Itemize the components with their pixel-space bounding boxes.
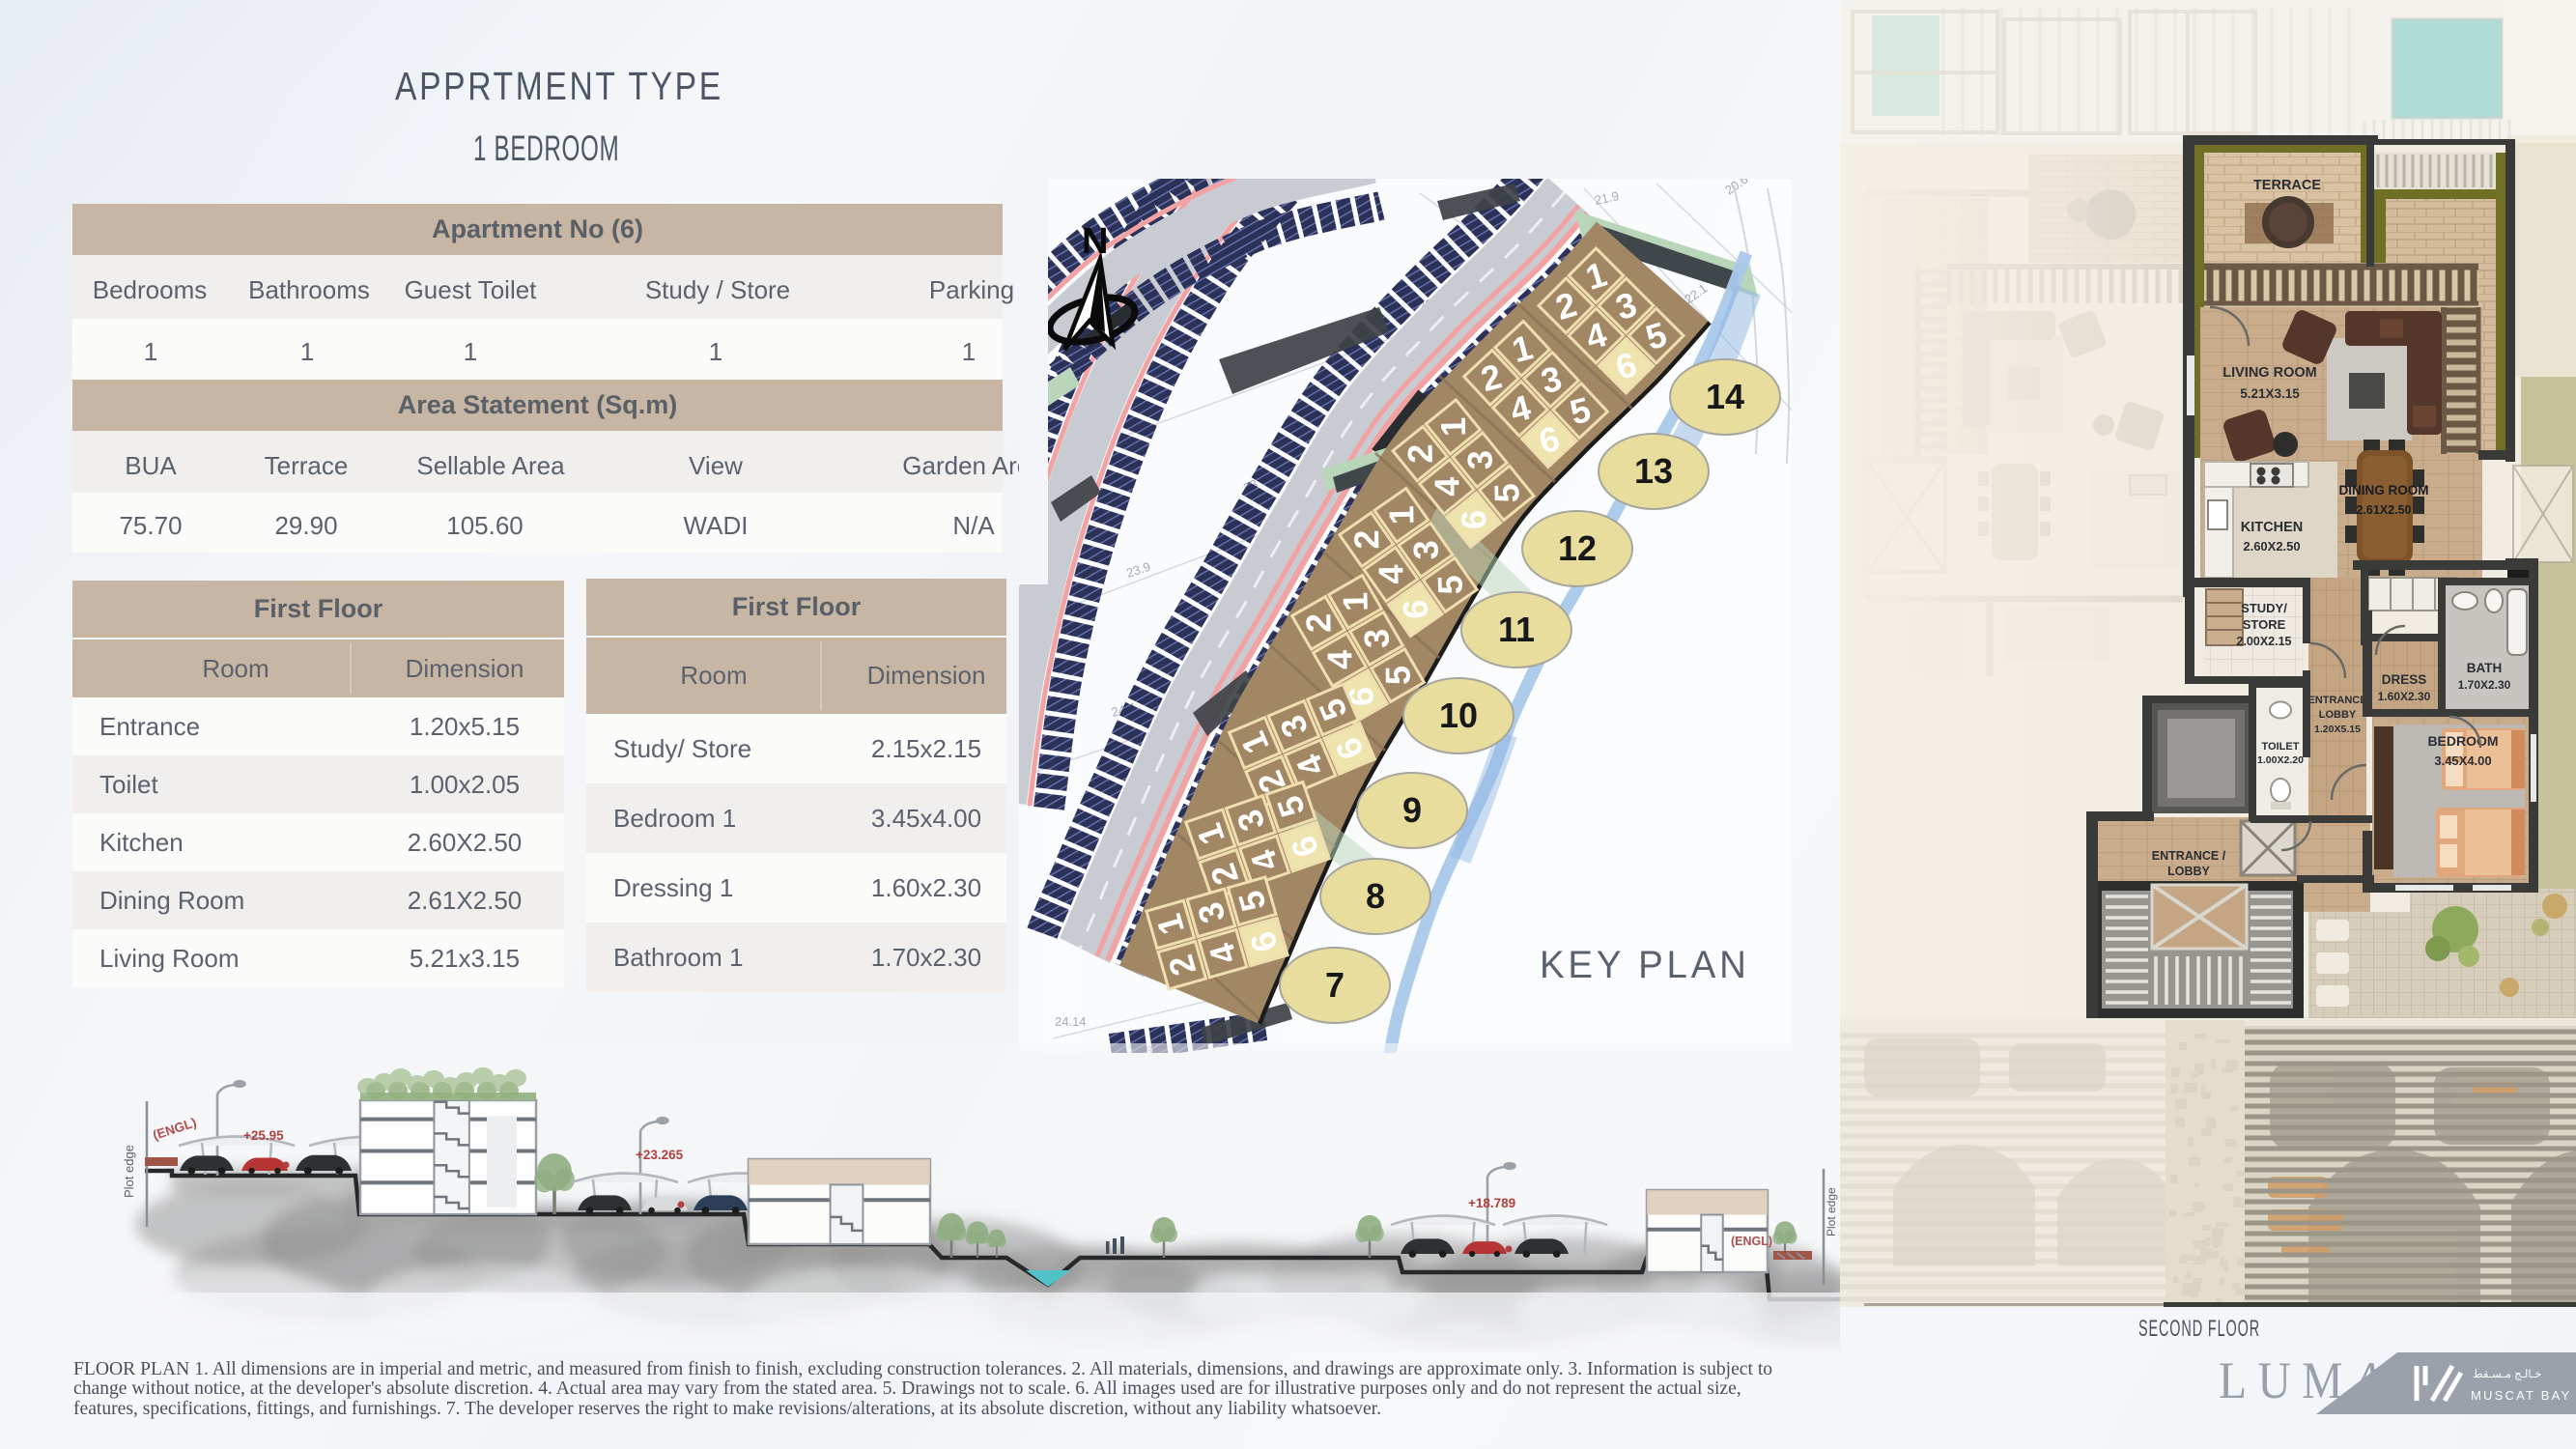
svg-text:24.14: 24.14 <box>1055 1014 1087 1029</box>
svg-text:5: 5 <box>1377 666 1417 686</box>
svg-text:Plot edge: Plot edge <box>1825 1187 1838 1236</box>
svg-text:5: 5 <box>1486 483 1526 503</box>
svg-text:3: 3 <box>1459 450 1499 470</box>
svg-text:STUDY/: STUDY/ <box>2241 601 2287 615</box>
svg-text:+18.789: +18.789 <box>1468 1196 1515 1210</box>
svg-text:1: 1 <box>1381 505 1421 526</box>
svg-text:5: 5 <box>1430 575 1470 595</box>
svg-text:3: 3 <box>1356 629 1396 649</box>
svg-text:4: 4 <box>1319 650 1359 670</box>
svg-text:1.20X5.15: 1.20X5.15 <box>2314 724 2361 735</box>
svg-text:3.45X4.00: 3.45X4.00 <box>2434 753 2491 768</box>
svg-text:LIVING ROOM: LIVING ROOM <box>2222 365 2316 381</box>
svg-text:خـالـج مـسـقط: خـالـج مـسـقط <box>2473 1368 2541 1380</box>
svg-text:8: 8 <box>1366 876 1385 916</box>
svg-text:MUSCAT BAY: MUSCAT BAY <box>2471 1388 2571 1403</box>
svg-text:LOBBY: LOBBY <box>2167 865 2210 878</box>
svg-text:+25.95: +25.95 <box>243 1128 284 1143</box>
svg-text:3: 3 <box>1405 540 1445 560</box>
svg-text:6: 6 <box>1454 510 1493 530</box>
svg-text:KEY PLAN: KEY PLAN <box>1540 944 1750 986</box>
svg-text:N: N <box>1082 221 1108 262</box>
svg-text:Plot edge: Plot edge <box>122 1145 136 1198</box>
svg-text:ENTRANCE: ENTRANCE <box>2307 695 2366 706</box>
svg-text:LOBBY: LOBBY <box>2319 709 2357 721</box>
svg-text:10: 10 <box>1439 696 1478 735</box>
svg-text:1.00X2.20: 1.00X2.20 <box>2257 754 2304 766</box>
svg-text:1: 1 <box>1433 417 1473 438</box>
svg-text:2.60X2.50: 2.60X2.50 <box>2243 539 2300 554</box>
svg-text:7: 7 <box>1325 965 1345 1005</box>
svg-text:BATH: BATH <box>2467 661 2503 675</box>
svg-text:2: 2 <box>1401 443 1440 464</box>
svg-text:TERRACE: TERRACE <box>2253 178 2321 193</box>
svg-text:4: 4 <box>1427 476 1466 497</box>
svg-text:12: 12 <box>1558 528 1597 568</box>
svg-text:2.61X2.50: 2.61X2.50 <box>2357 503 2412 517</box>
svg-text:5.21X3.15: 5.21X3.15 <box>2240 386 2300 401</box>
svg-text:9: 9 <box>1402 790 1422 830</box>
svg-text:14: 14 <box>1706 377 1744 416</box>
svg-text:+23.265: +23.265 <box>636 1148 684 1162</box>
svg-text:1.60X2.30: 1.60X2.30 <box>2378 690 2431 703</box>
svg-text:ENTRANCE /: ENTRANCE / <box>2152 849 2226 863</box>
svg-text:DRESS: DRESS <box>2382 672 2427 687</box>
svg-text:(ENGL): (ENGL) <box>1731 1235 1772 1248</box>
svg-text:1: 1 <box>1335 592 1374 612</box>
svg-text:STORE: STORE <box>2243 617 2286 632</box>
svg-text:1.70X2.30: 1.70X2.30 <box>2458 678 2511 692</box>
svg-text:11: 11 <box>1498 610 1535 649</box>
svg-text:2.00X2.15: 2.00X2.15 <box>2237 635 2292 648</box>
svg-text:DINING ROOM: DINING ROOM <box>2339 483 2429 497</box>
svg-text:KITCHEN: KITCHEN <box>2241 520 2303 535</box>
svg-text:2: 2 <box>1346 529 1386 550</box>
svg-text:6: 6 <box>1396 599 1435 619</box>
svg-text:BEDROOM: BEDROOM <box>2427 733 2498 749</box>
svg-text:4: 4 <box>1371 564 1410 584</box>
svg-text:13: 13 <box>1634 451 1673 491</box>
svg-text:2: 2 <box>1298 613 1338 634</box>
svg-text:TOILET: TOILET <box>2262 741 2300 753</box>
